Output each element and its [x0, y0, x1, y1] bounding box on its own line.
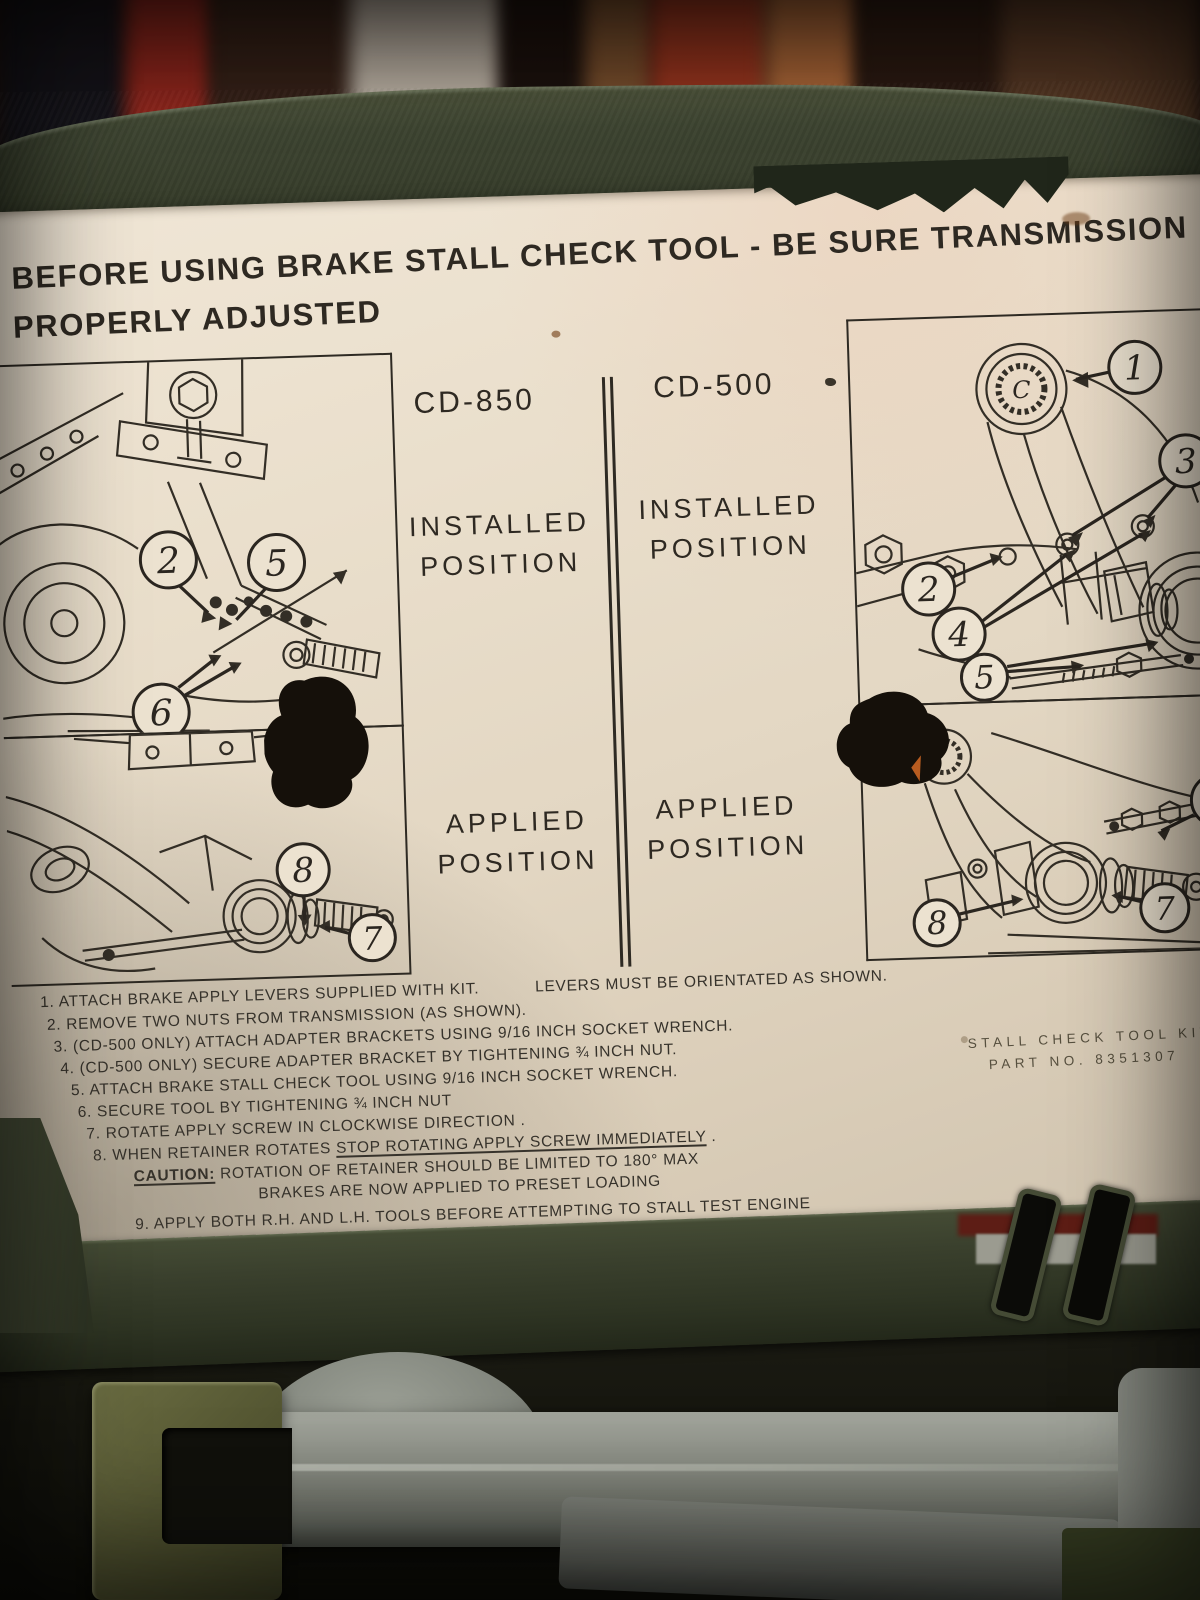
label-content: BEFORE USING BRAKE STALL CHECK TOOL - BE…	[0, 194, 1200, 1274]
callout-number: 2	[916, 570, 940, 611]
kit-part-no: PART NO. 8351307	[988, 1046, 1200, 1072]
callout-number: 4	[947, 615, 971, 656]
callout-number: 2	[155, 541, 180, 583]
case-corner-block	[1062, 1528, 1200, 1600]
callout-number: 7	[1154, 889, 1176, 928]
callout-number: 6	[149, 693, 173, 735]
caution-label: CAUTION:	[133, 1166, 215, 1186]
instruction-item-1-note: LEVERS MUST BE ORIENTATED AS SHOWN.	[535, 967, 888, 995]
model-label-cd850: CD-850	[413, 383, 535, 421]
callout-number: 5	[264, 543, 288, 585]
callout-number: 1	[1123, 348, 1146, 389]
callout-number: 7	[362, 919, 384, 958]
cd850-applied-position-label: APPLIED POSITION	[426, 799, 608, 885]
kit-part-number: STALL CHECK TOOL KIT PART NO. 8351307	[967, 1024, 1200, 1073]
header-line-2: PROPERLY ADJUSTED	[12, 294, 382, 346]
kit-title: STALL CHECK TOOL KIT	[967, 1024, 1200, 1051]
cd500-installed-diagram: C 1 3 2 4 5	[848, 309, 1200, 705]
instruction-label-sheet: BEFORE USING BRAKE STALL CHECK TOOL - BE…	[0, 172, 1200, 1275]
header-line-1: BEFORE USING BRAKE STALL CHECK TOOL - BE…	[11, 210, 1189, 297]
model-label-cd500: CD-500	[653, 368, 775, 406]
cd500-installed-position-label: INSTALLED POSITION	[633, 484, 825, 570]
cd500-applied-position-label: APPLIED POSITION	[636, 785, 818, 871]
case-foam-bracket	[92, 1382, 282, 1600]
lever-letter: C	[1012, 376, 1031, 405]
stain	[551, 330, 560, 337]
photo-of-tool-case-label: BEFORE USING BRAKE STALL CHECK TOOL - BE…	[0, 0, 1200, 1600]
stain	[825, 378, 836, 386]
case-hinge	[998, 1196, 1148, 1336]
ink-blob-left	[262, 673, 376, 816]
cd850-installed-position-label: INSTALLED POSITION	[404, 501, 596, 587]
callout-number: 8	[926, 904, 948, 943]
callout-number: 8	[292, 850, 315, 891]
callout-number: 5	[974, 658, 996, 697]
ink-blob-right	[835, 688, 960, 792]
callout-number: 3	[1174, 442, 1197, 483]
